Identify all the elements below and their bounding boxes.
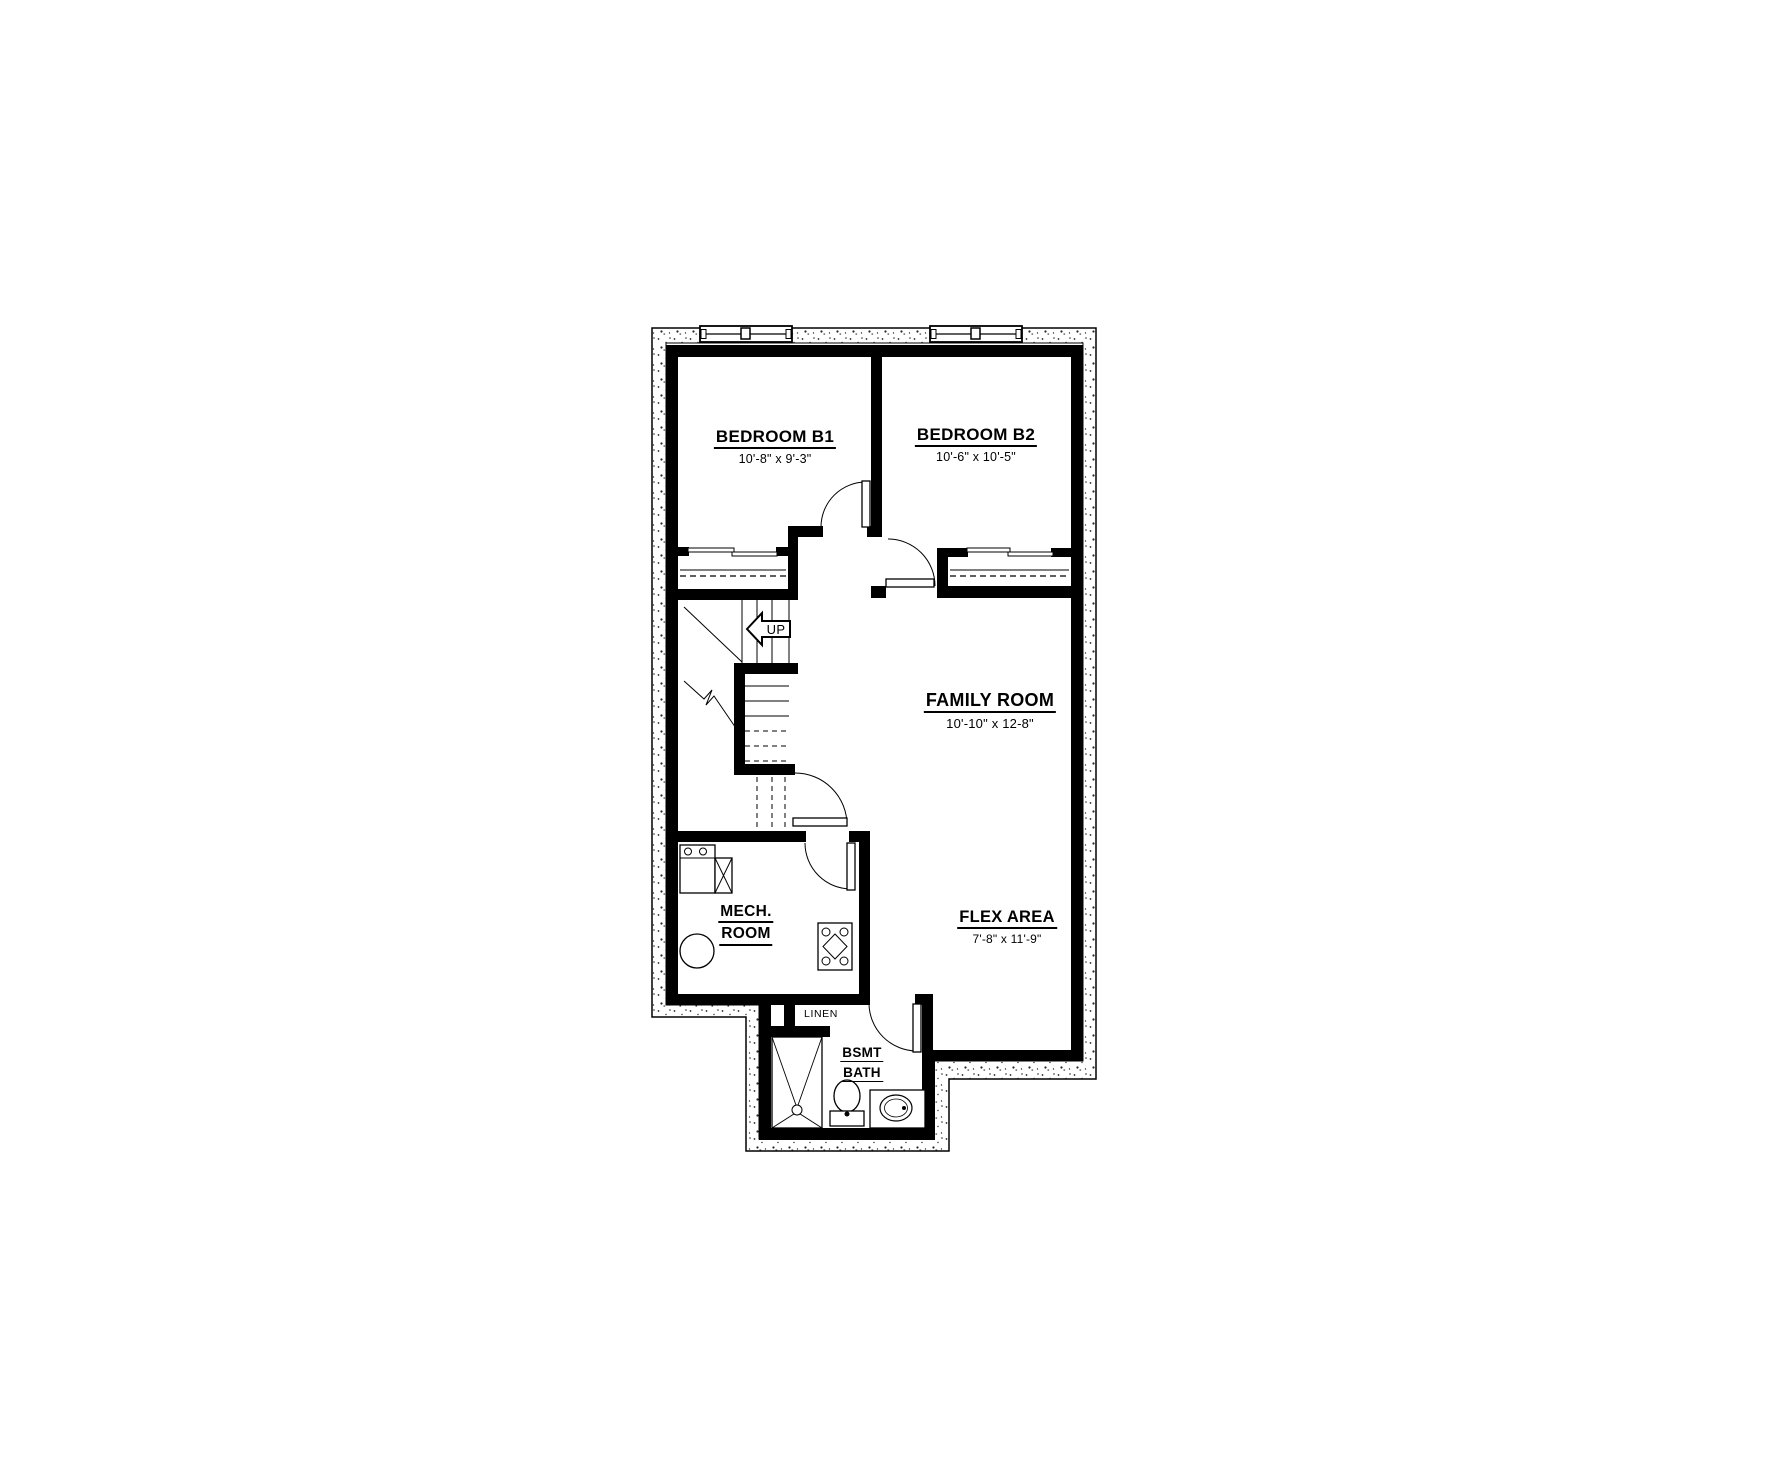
room-name-line2: BATH — [841, 1066, 883, 1082]
wall-mech-bottom — [666, 994, 870, 1005]
b1-closet-door-panel — [732, 552, 777, 556]
wall-top — [666, 345, 1083, 357]
wall-b2-bottom — [937, 586, 1083, 598]
sump-pump-icon — [680, 934, 714, 968]
laundry-tub-icon — [680, 845, 715, 893]
room-name: BEDROOM B1 — [714, 428, 836, 449]
wall-stair-west — [734, 663, 745, 775]
room-label-flex-area: FLEX AREA 7'-8" x 11'-9" — [957, 909, 1057, 946]
wall-b1-closet-stub-right — [776, 547, 798, 556]
wall-stair-mid — [734, 764, 795, 775]
wall-b1-b2-divider — [871, 357, 882, 537]
room-label-mech-room: MECH. ROOM — [718, 904, 773, 949]
wall-b2-stub — [871, 586, 886, 598]
room-dimensions: 10'-10" x 12-8" — [924, 716, 1056, 731]
door-leaf-mech-room — [847, 843, 855, 890]
window-1 — [700, 326, 792, 342]
door-leaf-hall — [793, 818, 847, 826]
wall-b1-closet-stub-left — [678, 547, 689, 556]
wall-linen-bottom — [771, 1026, 830, 1037]
wall-hall-west — [788, 526, 798, 600]
room-name-line2: ROOM — [719, 926, 772, 945]
room-label-bedroom-b2: BEDROOM B2 10'-6" x 10'-5" — [915, 426, 1037, 464]
room-label-bedroom-b1: BEDROOM B1 10'-8" x 9'-3" — [714, 428, 836, 466]
wall-right — [1071, 345, 1083, 1061]
b2-closet-door-panel — [1008, 552, 1053, 556]
room-name: BEDROOM B2 — [915, 426, 1037, 447]
shower-icon — [772, 1037, 822, 1128]
door-leaf-bath — [913, 1004, 921, 1052]
room-name-line1: MECH. — [718, 904, 773, 923]
wall-bath-bottom — [759, 1128, 935, 1140]
room-name: FLEX AREA — [957, 909, 1057, 929]
room-dimensions: 7'-8" x 11'-9" — [957, 932, 1057, 946]
b1-closet-door-panel — [688, 548, 734, 552]
wall-b2-closet-stub-left — [937, 548, 968, 557]
room-name-line1: BSMT — [840, 1046, 883, 1062]
wall-b1-closet-bottom — [666, 589, 798, 600]
wall-b2-closet-stub-right — [1051, 548, 1071, 557]
wall-flex-bottom — [933, 1050, 1083, 1061]
up-text: UP — [767, 622, 786, 637]
water-heater-icon — [715, 858, 732, 893]
furnace-icon — [818, 923, 852, 970]
wall-left — [666, 345, 678, 1005]
window-2 — [930, 326, 1022, 342]
room-label-linen: LINEN — [804, 1008, 838, 1020]
room-name: LINEN — [804, 1008, 838, 1020]
b2-closet-door-panel — [967, 548, 1010, 552]
room-name: FAMILY ROOM — [924, 691, 1056, 713]
door-leaf-bedroom-b1 — [862, 481, 870, 527]
room-label-bsmt-bath: BSMT BATH — [840, 1045, 883, 1085]
wall-mech-top — [666, 831, 806, 842]
wall-b1-door-header-right — [867, 526, 882, 537]
door-leaf-bedroom-b2 — [886, 579, 934, 587]
floor-plan-canvas: BEDROOM B1 10'-8" x 9'-3" BEDROOM B2 10'… — [0, 0, 1780, 1480]
wall-mech-flex — [859, 831, 870, 1005]
room-label-family-room: FAMILY ROOM 10'-10" x 12-8" — [924, 691, 1056, 731]
wall-bath-left — [759, 1005, 771, 1140]
room-dimensions: 10'-6" x 10'-5" — [915, 450, 1037, 464]
wall-vestibule-flex — [922, 994, 933, 1061]
vanity-sink-icon — [870, 1090, 925, 1128]
room-dimensions: 10'-8" x 9'-3" — [714, 452, 836, 466]
stairs-direction-label: UP — [767, 622, 786, 637]
floor-plan-drawing — [0, 0, 1780, 1480]
